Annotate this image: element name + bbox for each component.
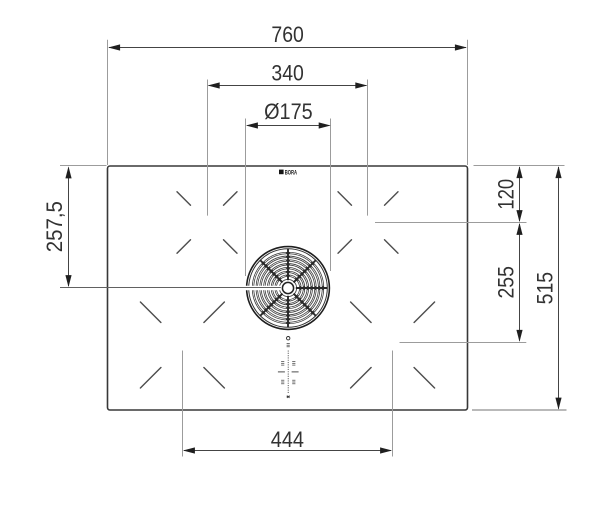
- svg-text:340: 340: [271, 61, 303, 86]
- svg-text:Ø175: Ø175: [264, 99, 313, 124]
- svg-text:760: 760: [271, 22, 303, 47]
- svg-text:444: 444: [271, 427, 304, 452]
- svg-text:BORA: BORA: [285, 169, 298, 176]
- svg-text:257,5: 257,5: [42, 201, 67, 252]
- svg-text:255: 255: [493, 266, 518, 299]
- svg-text:515: 515: [532, 272, 557, 305]
- svg-text:120: 120: [493, 179, 518, 210]
